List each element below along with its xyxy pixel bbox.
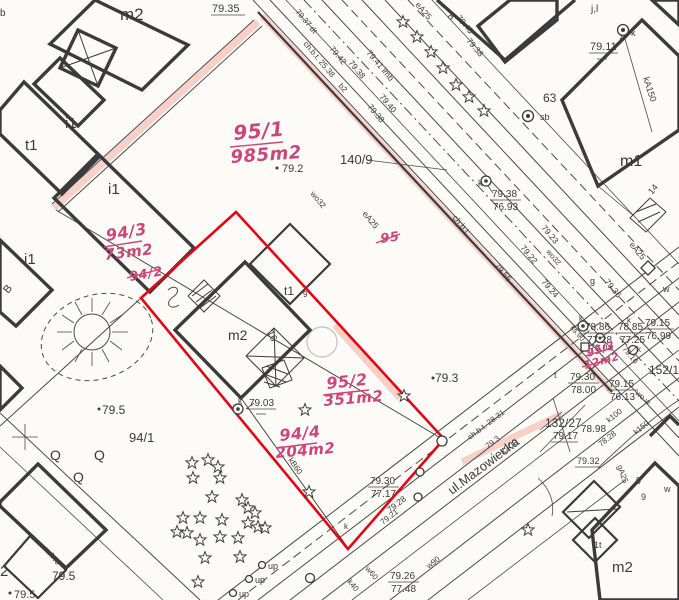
- elevation-label: 79.5: [14, 589, 35, 600]
- parcel-label-132-27: 132/27: [545, 416, 582, 430]
- tree-label-Q: Q: [50, 447, 61, 463]
- up-circle: [246, 576, 253, 583]
- label-9: 9: [303, 290, 308, 299]
- up-circle: [259, 562, 266, 569]
- parcel-label-2: 2: [0, 563, 8, 580]
- building-label-i1: i1: [108, 181, 120, 198]
- building-label-m2: m2: [120, 5, 144, 24]
- building-label-t1: t1: [25, 137, 38, 154]
- utility-label-w: w: [663, 484, 671, 494]
- tree-label-Q: Q: [94, 447, 105, 463]
- fraction-top: 78.85: [618, 322, 643, 333]
- boundary-point-circle: [416, 468, 424, 476]
- parcel-label-152-1: 152/1: [649, 363, 679, 377]
- fraction-bottom: 76.99: [646, 331, 671, 342]
- up-circle: [230, 590, 237, 597]
- fraction-bottom: 77.25: [620, 335, 645, 346]
- utility-label-g: g: [590, 276, 595, 286]
- fraction-top: 79.38: [492, 189, 517, 200]
- elevation-label: 79.5: [102, 403, 126, 417]
- elevation-label: 78.98: [581, 424, 606, 435]
- building-label-m2: m2: [228, 327, 248, 343]
- point-dot: [98, 408, 101, 411]
- fraction-top: 79.15: [645, 318, 670, 329]
- fraction-top: 79.15: [609, 379, 634, 390]
- point-dot: [276, 167, 279, 170]
- building-label-m1: m1: [620, 153, 642, 170]
- elevation-label: 79.2: [282, 163, 303, 175]
- fraction-top: 79.30: [370, 476, 395, 487]
- fraction-bottom: 78.00: [571, 385, 596, 396]
- manhole-circle: [414, 493, 422, 501]
- fraction-top: 79.30: [570, 372, 595, 383]
- fraction-top: 78.86: [585, 322, 610, 333]
- boundary-point-circle: [437, 436, 447, 446]
- utility-label-w: w: [662, 284, 670, 294]
- building-label-m2: m2: [612, 559, 633, 576]
- elevation-label: 79.17: [553, 431, 578, 442]
- map-canvas: m2 b 79.35 i1 t1 i1 i1 B 79.2 140/9 wo32…: [0, 0, 679, 600]
- fraction-top: 79.26: [390, 571, 415, 582]
- elevation-label: 79.35: [212, 3, 240, 15]
- elevation-label: 79.5: [52, 569, 76, 583]
- tree-label-Q: Q: [73, 469, 84, 485]
- well-symbol: [618, 25, 629, 36]
- building-label-i1: i1: [24, 251, 36, 268]
- fraction-bottom: 76.93: [493, 202, 518, 213]
- utility-label-k: k: [478, 178, 483, 188]
- utility-label-k: k: [631, 28, 636, 38]
- elevation-label: 79.11: [590, 41, 617, 53]
- manhole-circle: [306, 574, 315, 583]
- elevation-label: 79.03: [249, 398, 274, 409]
- red-parcel-number: 95/1: [232, 117, 285, 145]
- fraction-bottom: 76.13: [610, 392, 635, 403]
- point-dot: [9, 592, 12, 595]
- utility-label-g: g: [636, 474, 641, 484]
- building-label-jl: j,l: [590, 4, 598, 15]
- up-label: up: [239, 589, 249, 599]
- well-symbol: [523, 111, 534, 122]
- building-label-1t: 1t: [594, 540, 602, 550]
- elevation-label: 79.3: [435, 371, 459, 385]
- up-label: up: [255, 575, 265, 585]
- parcel-label-63: 63: [543, 91, 557, 105]
- edge-label-b: b: [0, 8, 6, 19]
- building-label-t1: t1: [284, 284, 294, 298]
- building-label-i1: i1: [65, 115, 77, 132]
- fraction-bottom: 77.48: [391, 584, 416, 595]
- cadastral-map: m2 b 79.35 i1 t1 i1 i1 B 79.2 140/9 wo32…: [0, 0, 679, 600]
- label-9: 9: [641, 492, 646, 502]
- up-label: up: [268, 561, 278, 571]
- parcel-label-94-1: 94/1: [129, 430, 154, 445]
- parcel-label-140-9: 140/9: [340, 152, 373, 167]
- fraction-bottom: 77.17: [371, 489, 396, 500]
- elevation-label: 79.32: [577, 456, 600, 466]
- utility-label-sb: sb: [540, 112, 550, 122]
- well-symbol: [481, 176, 491, 186]
